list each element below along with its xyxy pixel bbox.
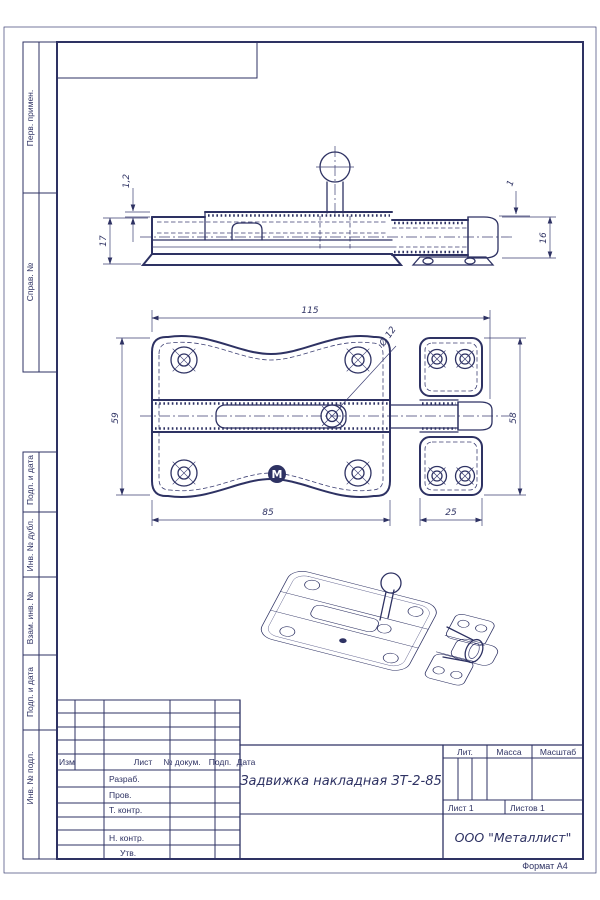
side-view: 1,2 17 1 16 [99,146,556,265]
revision-col-list: Лист [134,757,153,767]
masshtab-label: Масштаб [540,747,576,757]
massa-label: Масса [496,747,521,757]
svg-text:1: 1 [505,179,516,188]
revision-col-podp: Подп. [209,757,232,767]
margin-label-inv-dubl: Инв. № дубл. [25,519,35,572]
doc-title: Задвижка накладная ЗТ-2-85 [240,774,442,789]
role-tkontr: Т. контр. [109,805,142,815]
dim-16: 16 [502,217,556,258]
svg-text:115: 115 [301,306,318,316]
margin-strip: Перв. примен. Справ. № Подп. и дата Инв.… [23,42,57,859]
revision-col-izm: Изм [59,757,75,767]
svg-text:58: 58 [509,412,519,424]
plan-view: М 115 Ø 12 59 58 85 [111,306,526,526]
iso-view [257,568,513,692]
dim-1: 1 [499,179,530,216]
title-block: Изм Лист № докум. Подп. Дата Разраб. Про… [57,700,583,871]
role-razrab: Разраб. [109,774,140,784]
svg-text:М: М [272,468,283,481]
role-utv: Утв. [120,848,136,858]
keeper-holes [420,342,482,493]
svg-text:25: 25 [445,508,457,518]
lit-label: Лит. [457,747,473,757]
svg-text:16: 16 [539,232,549,244]
svg-text:59: 59 [111,412,121,424]
dim-59: 59 [111,338,150,495]
sheets-total: Листов 1 [510,803,545,813]
role-prov: Пров. [109,790,131,800]
revision-col-data: Дата [237,757,256,767]
margin-label-perv-primen: Перв. примен. [25,90,35,147]
dim-1-2: 1,2 [122,174,150,242]
format-label: Формат А4 [522,861,567,871]
margin-label-podp-data-1: Подп. и дата [25,455,35,505]
svg-text:1,2: 1,2 [122,174,132,189]
sheet-number: Лист 1 [448,803,474,813]
dim-25: 25 [420,498,482,526]
role-nkontr: Н. контр. [109,833,144,843]
dim-17: 17 [99,218,148,264]
top-stamp-box [57,42,257,78]
margin-label-vzam-inv: Взам. инв. № [25,592,35,645]
svg-text:85: 85 [262,508,274,518]
revision-col-dokum: № докум. [163,757,200,767]
margin-label-podp-data-2: Подп. и дата [25,667,35,717]
drawing-sheet: Перв. примен. Справ. № Подп. и дата Инв.… [0,0,600,900]
drawing-canvas: Перв. примен. Справ. № Подп. и дата Инв.… [0,0,600,900]
dim-115: 115 [152,306,490,399]
company-name: ООО "Металлист" [455,830,572,845]
svg-text:17: 17 [99,235,109,247]
margin-label-sprav-no: Справ. № [25,263,35,302]
dim-85: 85 [152,500,390,526]
margin-label-inv-podl: Инв. № подл. [25,752,35,805]
brand-logo: М [268,465,286,483]
